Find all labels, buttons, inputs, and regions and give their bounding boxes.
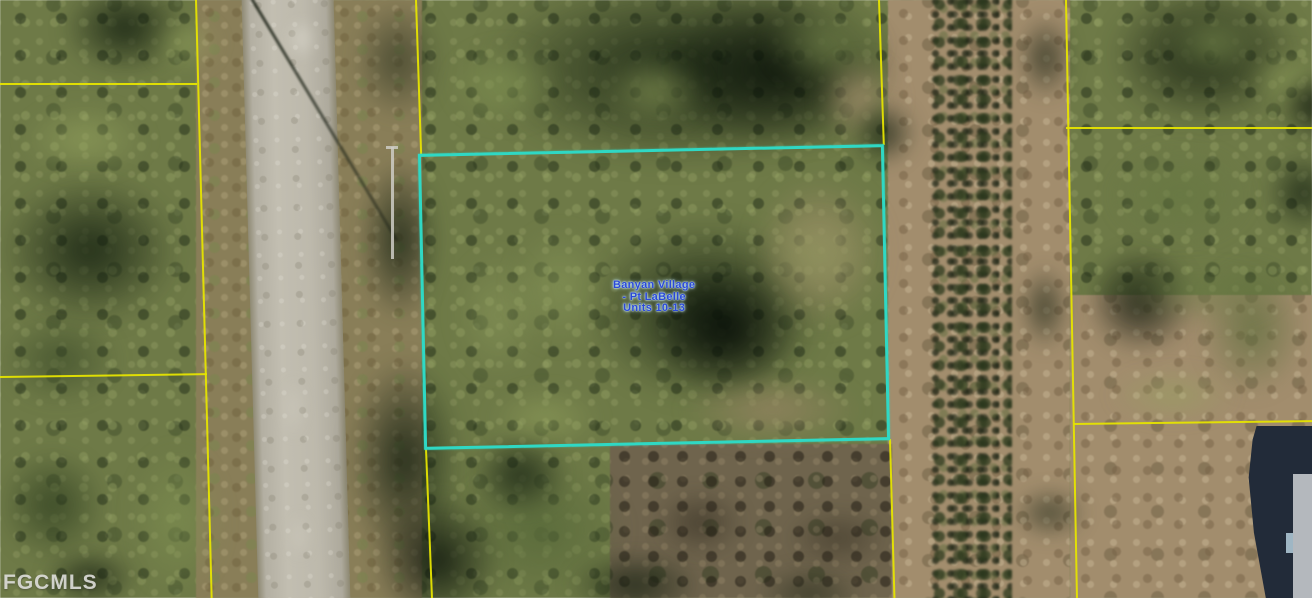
scrub-shadow <box>640 478 760 568</box>
watermark: FGCMLS <box>3 571 98 595</box>
parcel-label-line-3: Units 10-13 <box>613 303 695 315</box>
road-light-patch <box>280 368 308 448</box>
tree-canopy <box>585 40 725 140</box>
building-roof-light <box>1293 474 1312 598</box>
aerial-photo: Banyan Village - Pt LaBelle Units 10-13 … <box>0 0 1312 598</box>
tree-shadow <box>1000 478 1100 548</box>
parcel-label-line-1: Banyan Village <box>613 280 695 292</box>
grass-patch <box>1075 255 1312 335</box>
parcel-line-left-upper-horizontal <box>0 83 197 85</box>
tree-canopy <box>430 30 580 140</box>
tree-shadow <box>1008 0 1083 115</box>
tree-shadow <box>1012 250 1077 365</box>
road-light-patch <box>288 505 312 567</box>
highlighted-parcel-boundary: Banyan Village - Pt LaBelle Units 10-13 <box>418 144 890 450</box>
grass-patch <box>138 8 233 78</box>
utility-pole-crossarm <box>386 146 398 149</box>
parcel-label: Banyan Village - Pt LaBelle Units 10-13 <box>613 280 695 315</box>
parcel-line-right-upper-horizontal <box>1066 127 1312 129</box>
weed-line-core <box>947 0 999 598</box>
utility-pole <box>391 147 394 259</box>
scrub-shadow <box>768 498 908 578</box>
building-detail <box>1286 533 1293 553</box>
grass-patch <box>1088 360 1258 430</box>
